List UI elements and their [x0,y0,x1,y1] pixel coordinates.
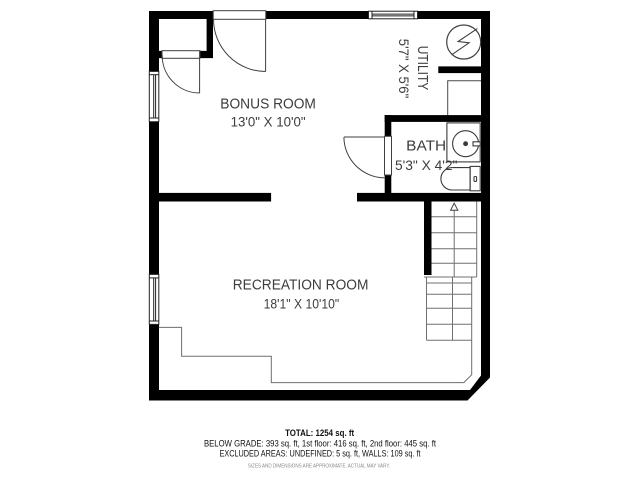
svg-text:BONUS ROOM: BONUS ROOM [220,97,316,113]
svg-text:5'3" X 4'2": 5'3" X 4'2" [395,157,458,173]
svg-text:EXCLUDED AREAS: UNDEFINED: 5 s: EXCLUDED AREAS: UNDEFINED: 5 sq. ft, WAL… [220,448,421,458]
svg-text:13'0" X 10'0": 13'0" X 10'0" [231,113,306,129]
svg-text:BELOW GRADE: 393 sq. ft, 1st f: BELOW GRADE: 393 sq. ft, 1st floor: 416 … [204,438,436,448]
svg-text:18'1" X 10'10": 18'1" X 10'10" [264,295,340,311]
svg-text:TOTAL: 1254 sq. ft: TOTAL: 1254 sq. ft [285,428,354,438]
svg-text:SIZES AND DIMENSIONS ARE APPRO: SIZES AND DIMENSIONS ARE APPROXIMATE. AC… [248,464,391,470]
svg-text:5'7" X 5'6": 5'7" X 5'6" [396,39,412,98]
svg-text:UTILITY: UTILITY [414,46,430,91]
svg-text:RECREATION ROOM: RECREATION ROOM [233,277,369,293]
svg-text:BATH: BATH [406,138,446,154]
